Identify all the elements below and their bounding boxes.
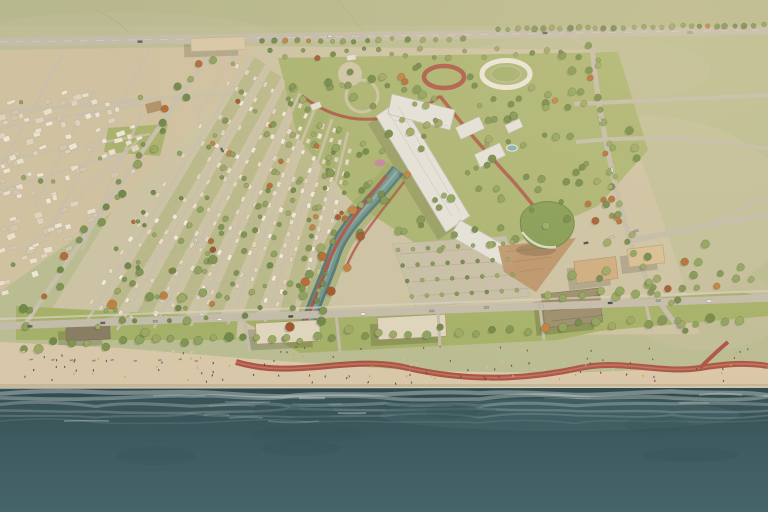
warm-haze: [0, 0, 768, 512]
masterplan-image: Aerial masterplan rendering of a coastal…: [0, 0, 768, 512]
masterplan-render: Aerial masterplan rendering of a coastal…: [0, 0, 768, 512]
atmosphere: [0, 0, 768, 512]
